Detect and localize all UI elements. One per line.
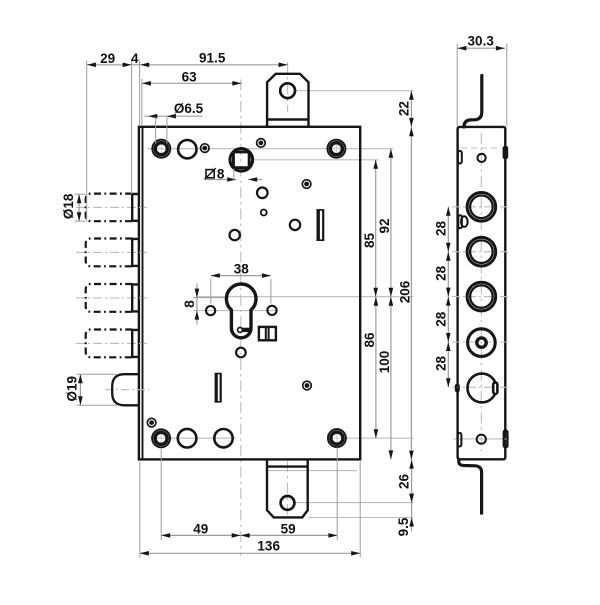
svg-text:28: 28 (434, 356, 449, 372)
svg-text:28: 28 (434, 311, 449, 327)
svg-text:4: 4 (131, 51, 139, 66)
svg-text:92: 92 (377, 218, 392, 233)
svg-text:9.5: 9.5 (396, 517, 411, 536)
svg-text:28: 28 (434, 221, 449, 237)
svg-text:8: 8 (217, 166, 225, 181)
svg-text:Ø18: Ø18 (61, 193, 76, 219)
svg-text:206: 206 (398, 280, 413, 303)
svg-text:49: 49 (193, 522, 208, 537)
svg-text:100: 100 (377, 351, 392, 374)
svg-text:28: 28 (434, 265, 449, 281)
svg-text:63: 63 (182, 70, 198, 85)
svg-text:22: 22 (397, 101, 412, 116)
svg-text:91.5: 91.5 (199, 51, 226, 66)
svg-text:38: 38 (234, 261, 250, 276)
svg-text:26: 26 (397, 474, 412, 490)
svg-text:30.3: 30.3 (468, 34, 495, 49)
svg-text:86: 86 (362, 332, 377, 348)
svg-text:Ø19: Ø19 (65, 376, 80, 402)
svg-text:Ø6.5: Ø6.5 (174, 101, 204, 116)
svg-text:59: 59 (281, 522, 296, 537)
svg-text:8: 8 (182, 300, 197, 308)
svg-text:136: 136 (257, 539, 280, 554)
svg-text:29: 29 (100, 51, 115, 66)
svg-text:85: 85 (362, 233, 377, 249)
